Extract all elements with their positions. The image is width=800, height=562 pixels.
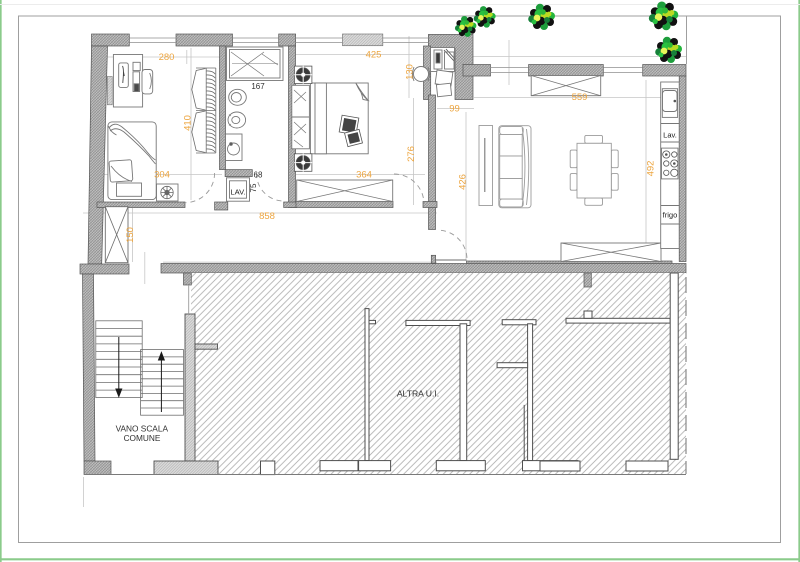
- svg-text:559: 559: [572, 92, 588, 103]
- svg-text:410: 410: [183, 115, 194, 131]
- svg-text:68: 68: [254, 171, 263, 180]
- svg-text:150: 150: [125, 227, 136, 243]
- svg-text:425: 425: [366, 50, 382, 61]
- svg-text:858: 858: [259, 211, 275, 222]
- svg-text:LAV.: LAV.: [230, 188, 245, 197]
- svg-text:frigo: frigo: [663, 211, 678, 220]
- svg-text:167: 167: [251, 82, 265, 91]
- svg-text:280: 280: [159, 52, 175, 63]
- svg-text:492: 492: [646, 161, 657, 177]
- svg-text:COMUNE: COMUNE: [124, 433, 161, 443]
- svg-text:Lav.: Lav.: [663, 131, 677, 140]
- svg-text:99: 99: [449, 104, 460, 115]
- svg-text:130: 130: [405, 64, 416, 80]
- svg-text:75: 75: [249, 183, 258, 192]
- svg-text:VANO SCALA: VANO SCALA: [116, 424, 169, 434]
- svg-text:ALTRA U.I.: ALTRA U.I.: [397, 389, 439, 399]
- svg-text:276: 276: [406, 146, 417, 162]
- svg-text:304: 304: [154, 170, 170, 181]
- svg-text:426: 426: [458, 174, 469, 190]
- svg-text:364: 364: [356, 170, 372, 181]
